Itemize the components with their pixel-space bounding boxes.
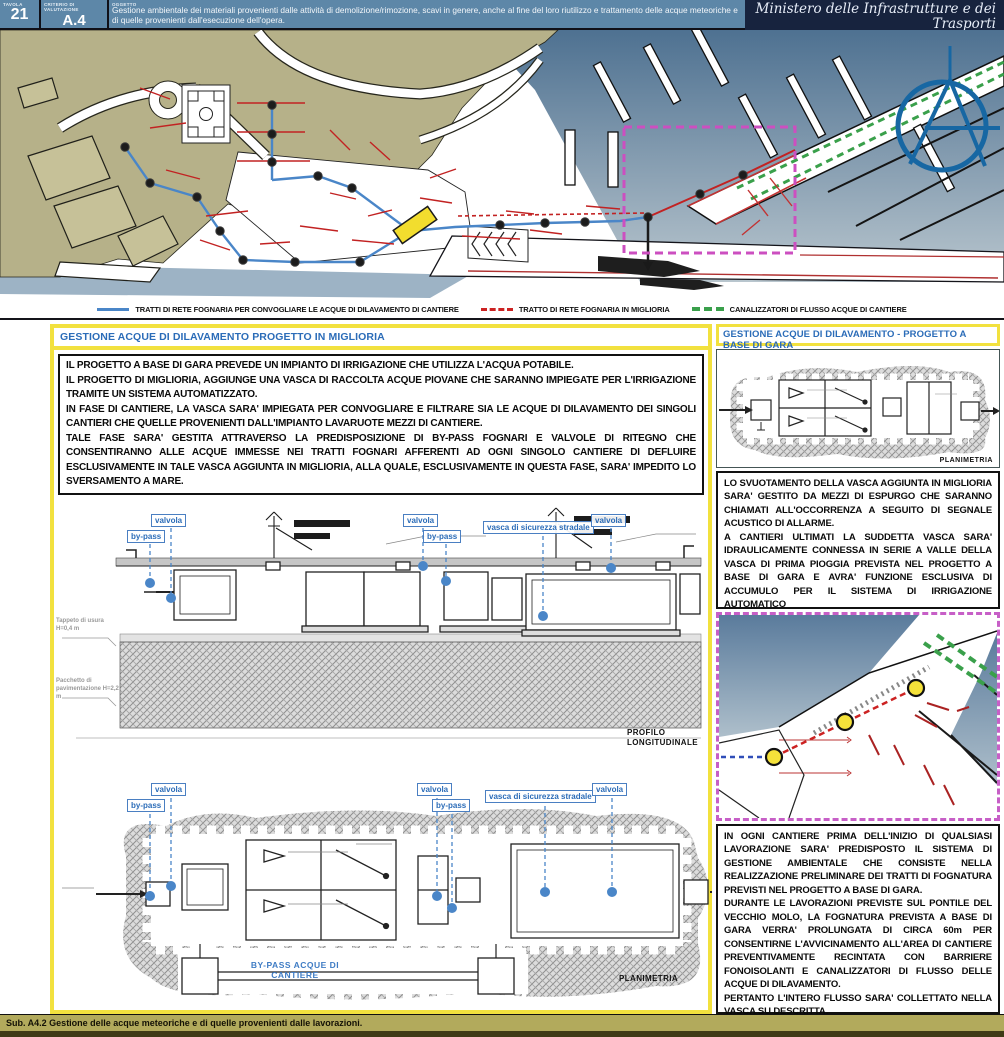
- callout-bypass: by-pass: [127, 799, 165, 812]
- paragraph: IN OGNI CANTIERE PRIMA DELL'INIZIO DI QU…: [724, 830, 992, 897]
- left-panel-title: GESTIONE ACQUE DI DILAVAMENTO PROGETTO I…: [54, 328, 708, 350]
- paragraph: TALE FASE SARA' GESTITA ATTRAVERSO LA PR…: [66, 432, 696, 490]
- oggetto-cell: OGGETTO Gestione ambientale dei material…: [109, 0, 745, 28]
- bypass-duct-label: BY-PASS ACQUE DI CANTIERE: [230, 960, 360, 980]
- map-legend: TRATTI DI RETE FOGNARIA PER CONVOGLIARE …: [0, 300, 1004, 318]
- footer-bar: Sub. A4.2 Gestione delle acque meteorich…: [0, 1014, 1004, 1031]
- callout-valvola: valvola: [417, 783, 452, 796]
- right-panel-title: GESTIONE ACQUE DI DILAVAMENTO - PROGETTO…: [716, 324, 1000, 346]
- ministry-block: Ministero delle Infrastrutture e dei Tra…: [745, 0, 1004, 30]
- callout-valvola: valvola: [403, 514, 438, 527]
- title-block: TAVOLA 21 CRITERIO DI VALUTAZIONE A.4 OG…: [0, 0, 1004, 30]
- site-plan-svg: [0, 30, 1004, 318]
- footer-text: Sub. A4.2 Gestione delle acque meteorich…: [6, 1018, 362, 1028]
- right-text-block-1: LO SVUOTAMENTO DELLA VASCA AGGIUNTA IN M…: [716, 471, 1000, 609]
- paragraph: A CANTIERI ULTIMATI LA SUDDETTA VASCA SA…: [724, 531, 992, 612]
- footer-strip: [0, 1031, 1004, 1037]
- legend-label: TRATTO DI RETE FOGNARIA IN MIGLIORIA: [519, 305, 670, 314]
- criterio-label: CRITERIO DI VALUTAZIONE: [41, 0, 107, 12]
- tavola-number: 21: [0, 6, 39, 24]
- chevron-dock: [468, 226, 528, 262]
- left-panel-text: IL PROGETTO A BASE DI GARA PREVEDE UN IM…: [58, 354, 704, 495]
- paragraph: LO SVUOTAMENTO DELLA VASCA AGGIUNTA IN M…: [724, 477, 992, 531]
- base-design-schematic: PLANIMETRIA: [716, 349, 1000, 468]
- legend-item-red: TRATTO DI RETE FOGNARIA IN MIGLIORIA: [481, 305, 670, 314]
- legend-swatch-green: [692, 307, 724, 311]
- paragraph: IL PROGETTO DI MIGLIORIA, AGGIUNGE UNA V…: [66, 374, 696, 403]
- legend-item-green: CANALIZZATORI DI FLUSSO ACQUE DI CANTIER…: [692, 305, 907, 314]
- ministry-title: Ministero delle Infrastrutture e dei Tra…: [745, 0, 1004, 32]
- tavola-cell: TAVOLA 21: [0, 0, 41, 28]
- base-design-schematic-svg: [717, 350, 999, 467]
- criterio-code: A.4: [41, 12, 107, 29]
- paragraph: IL PROGETTO A BASE DI GARA PREVEDE UN IM…: [66, 359, 696, 374]
- detail-map-svg: [719, 615, 997, 818]
- legend-swatch-red: [481, 308, 513, 311]
- schematic-caption: PLANIMETRIA: [940, 457, 993, 464]
- paragraph: DURANTE LE LAVORAZIONI PREVISTE SUL PONT…: [724, 897, 992, 991]
- callout-bypass: by-pass: [127, 530, 165, 543]
- callout-bypass: by-pass: [423, 530, 461, 543]
- garden-square: [182, 85, 230, 143]
- criterio-cell: CRITERIO DI VALUTAZIONE A.4: [41, 0, 109, 28]
- left-panel: GESTIONE ACQUE DI DILAVAMENTO PROGETTO I…: [50, 324, 712, 1014]
- margin-note-1: Tappeto di usura H=0,4 m: [56, 618, 120, 634]
- legend-item-blue: TRATTI DI RETE FOGNARIA PER CONVOGLIARE …: [97, 305, 458, 314]
- callout-valvola: valvola: [151, 783, 186, 796]
- detail-map-inset: [716, 612, 1000, 821]
- drawing-sheet: TAVOLA 21 CRITERIO DI VALUTAZIONE A.4 OG…: [0, 0, 1004, 1037]
- callout-valvola: valvola: [592, 783, 627, 796]
- paragraph: IN FASE DI CANTIERE, LA VASCA SARA' IMPI…: [66, 403, 696, 432]
- margin-note-2: Pacchetto di pavimentazione H=2,2 m: [56, 678, 120, 701]
- legend-label: CANALIZZATORI DI FLUSSO ACQUE DI CANTIER…: [730, 305, 907, 314]
- site-plan-map: [0, 30, 1004, 320]
- legend-label: TRATTI DI RETE FOGNARIA PER CONVOGLIARE …: [135, 305, 458, 314]
- callout-valvola: valvola: [151, 514, 186, 527]
- callout-valvola: valvola: [591, 514, 626, 527]
- right-text-block-2: IN OGNI CANTIERE PRIMA DELL'INIZIO DI QU…: [716, 824, 1000, 1014]
- oggetto-text: Gestione ambientale dei materiali proven…: [109, 6, 745, 26]
- callout-vasca: vasca di sicurezza stradale: [485, 790, 596, 803]
- legend-swatch-blue: [97, 308, 129, 311]
- callout-bypass: by-pass: [432, 799, 470, 812]
- callout-vasca: vasca di sicurezza stradale: [483, 521, 594, 534]
